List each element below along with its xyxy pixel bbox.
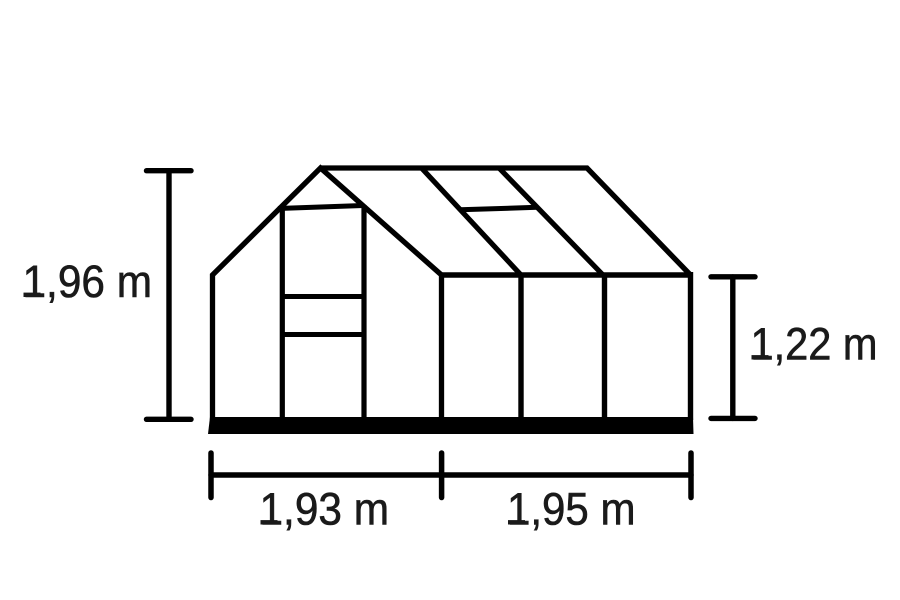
svg-text:1,96 m: 1,96 m	[23, 256, 153, 307]
svg-text:1,22 m: 1,22 m	[751, 319, 878, 370]
svg-text:1,95 m: 1,95 m	[507, 484, 636, 535]
svg-text:1,93 m: 1,93 m	[260, 484, 390, 535]
